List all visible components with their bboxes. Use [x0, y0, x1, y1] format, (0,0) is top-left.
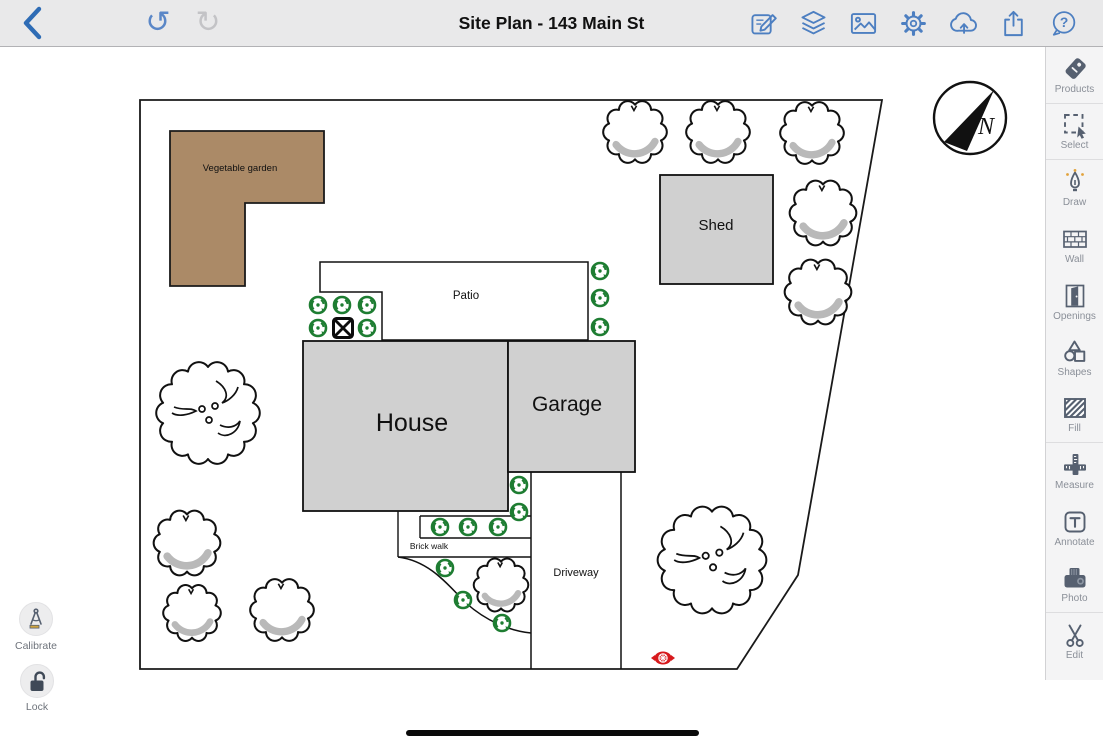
compose-notes-icon[interactable]: [748, 8, 779, 39]
hatch-fill-icon: [1061, 394, 1089, 422]
undo-button[interactable]: ↺: [138, 2, 178, 44]
image-icon[interactable]: [848, 8, 879, 39]
share-icon[interactable]: [998, 8, 1029, 39]
tool-label: Photo: [1061, 593, 1087, 604]
scissors-icon: [1061, 621, 1089, 649]
document-title: Site Plan - 143 Main St: [459, 0, 645, 47]
help-question-mark: ?: [1060, 14, 1068, 30]
lock-button[interactable]: [20, 664, 54, 698]
home-indicator[interactable]: [406, 730, 699, 736]
tool-label: Products: [1055, 84, 1094, 95]
back-chevron-icon: [26, 9, 39, 37]
tag-icon: [1061, 55, 1089, 83]
brick-walk-label: Brick walk: [410, 541, 449, 551]
tool-label: Measure: [1055, 480, 1094, 491]
ruler-icon: [1061, 451, 1089, 479]
tool-openings[interactable]: Openings: [1046, 273, 1103, 330]
lock-label: Lock: [1, 701, 73, 713]
tool-fill[interactable]: Fill: [1046, 387, 1103, 444]
toolbar-right-group: ?: [748, 8, 1079, 39]
tool-label: Select: [1061, 140, 1089, 151]
shapes-icon: [1061, 338, 1089, 366]
tool-wall[interactable]: Wall: [1046, 217, 1103, 274]
layers-icon[interactable]: [798, 8, 829, 39]
pen-nib-icon: [1061, 168, 1089, 196]
house-label: House: [376, 409, 448, 437]
tool-annotate[interactable]: Annotate: [1046, 500, 1103, 557]
calibrate-button[interactable]: [19, 602, 53, 636]
cloud-upload-icon[interactable]: [948, 8, 979, 39]
help-icon[interactable]: ?: [1048, 8, 1079, 39]
tool-label: Edit: [1066, 650, 1083, 661]
tool-label: Shapes: [1058, 367, 1092, 378]
tool-sidebar: Products Select Draw Wall: [1045, 47, 1103, 680]
tool-edit[interactable]: Edit: [1046, 613, 1103, 670]
tool-draw[interactable]: Draw: [1046, 160, 1103, 217]
tool-label: Wall: [1065, 254, 1084, 265]
tool-label: Draw: [1063, 197, 1086, 208]
open-padlock-icon: [24, 668, 50, 694]
camera-icon: [1061, 564, 1089, 592]
calibrate-label: Calibrate: [0, 640, 72, 652]
shed[interactable]: Shed: [660, 175, 773, 284]
top-toolbar: ↺ ↻ Site Plan - 143 Main St: [0, 0, 1103, 47]
tool-shapes[interactable]: Shapes: [1046, 330, 1103, 387]
driveway-label: Driveway: [553, 567, 599, 579]
tool-measure[interactable]: Measure: [1046, 443, 1103, 500]
north-compass[interactable]: N: [934, 82, 1006, 154]
tool-label: Fill: [1068, 423, 1081, 434]
garage-label: Garage: [532, 393, 602, 416]
tool-photo[interactable]: Photo: [1046, 556, 1103, 613]
plan-canvas[interactable]: Vegetable garden Patio Shed House Garage…: [0, 47, 1045, 737]
shed-label: Shed: [698, 217, 733, 234]
settings-gear-icon[interactable]: [898, 8, 929, 39]
drafting-compass-icon: [23, 606, 49, 632]
redo-button[interactable]: ↻: [188, 2, 228, 44]
tool-products[interactable]: Products: [1046, 47, 1103, 104]
vegetable-garden-label: Vegetable garden: [203, 163, 277, 174]
tool-label: Openings: [1053, 311, 1096, 322]
patio-label: Patio: [453, 290, 479, 302]
tool-select[interactable]: Select: [1046, 104, 1103, 161]
back-button[interactable]: [20, 6, 44, 40]
brick-wall-icon: [1061, 225, 1089, 253]
compass-north-label: N: [977, 114, 996, 140]
spa-box-symbol[interactable]: [332, 317, 354, 339]
house[interactable]: House: [303, 341, 508, 511]
tool-label: Annotate: [1054, 537, 1094, 548]
door-icon: [1061, 282, 1089, 310]
text-icon: [1061, 508, 1089, 536]
marquee-cursor-icon: [1061, 111, 1089, 139]
garage[interactable]: Garage: [508, 341, 635, 472]
